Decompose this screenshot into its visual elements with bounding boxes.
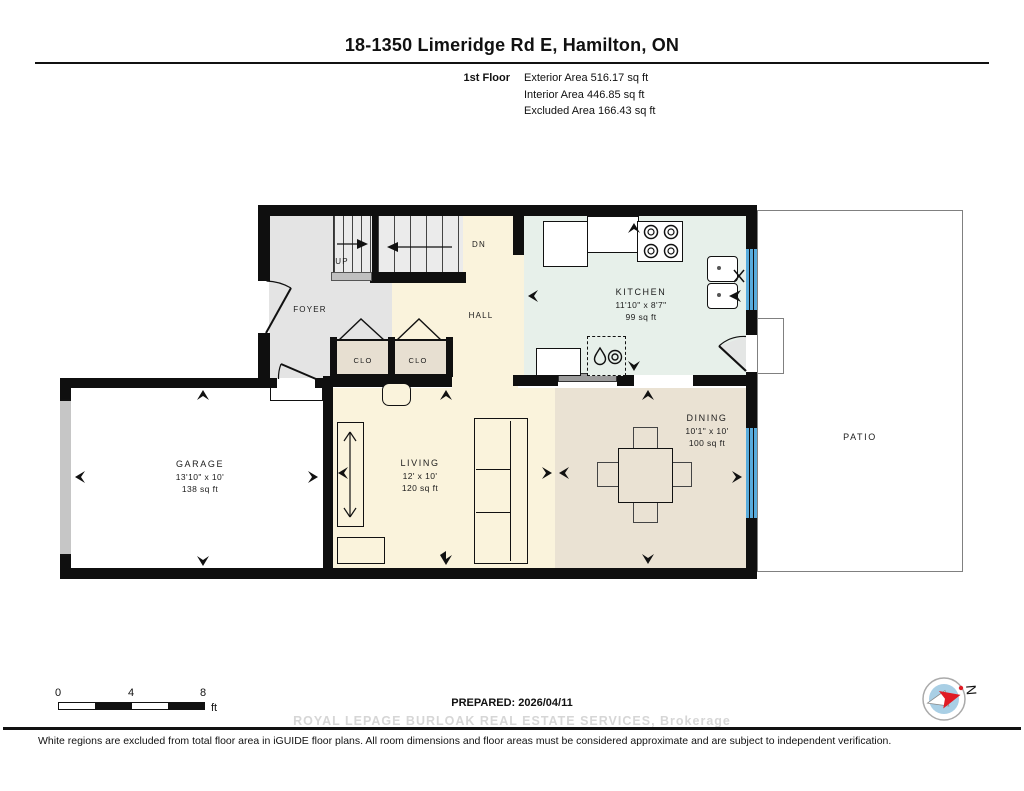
hall-living-passage [452, 374, 518, 388]
kitchen-window [746, 249, 757, 310]
closet2-label: CLO [399, 356, 437, 365]
sofa-back-line [510, 421, 511, 561]
sink-basin-top [707, 256, 738, 282]
patio-label: PATIO [810, 432, 910, 442]
kitchen-counter-left [543, 221, 588, 267]
side-table [337, 537, 385, 564]
exterior-step [757, 318, 784, 374]
garage-door [60, 399, 71, 556]
wall-left-upper-a [258, 211, 270, 281]
sink-basin-bottom [707, 283, 738, 309]
compass-north-dot [959, 686, 963, 690]
wall-top [258, 205, 757, 216]
stair-landing [331, 272, 372, 281]
stairs-down [378, 216, 463, 272]
excluded-area: Excluded Area 166.43 sq ft [524, 105, 655, 118]
title-divider [35, 62, 989, 64]
footer-divider [3, 727, 1021, 730]
stove [637, 221, 683, 262]
prepared-date: PREPARED: 2026/04/11 [0, 697, 1024, 709]
disclaimer-text: White regions are excluded from total fl… [38, 735, 998, 747]
dining-label: DINING 10'1" x 10' 100 sq ft [648, 413, 766, 448]
wall-garage-living [323, 376, 333, 578]
exterior-area: Exterior Area 516.17 sq ft [524, 72, 648, 85]
floor-label: 1st Floor [380, 72, 510, 84]
kitchen-counter-bottom [536, 348, 581, 376]
chair-right [671, 462, 692, 487]
dn-label: DN [466, 240, 492, 249]
dining-table [618, 448, 673, 503]
wall-garage-top-a [60, 378, 277, 388]
up-label: UP [330, 257, 354, 266]
dishwasher [587, 336, 626, 376]
wall-east-d [746, 518, 757, 574]
patio-region [757, 210, 963, 572]
closet-jamb-mid [388, 337, 395, 377]
kitchen-dining-passage [632, 375, 693, 388]
ottoman [382, 383, 411, 406]
garage-step [270, 388, 323, 401]
sofa-cushion-line [476, 512, 511, 513]
window-pane [753, 249, 755, 310]
living-label: LIVING 12' x 10' 120 sq ft [355, 458, 485, 493]
brokerage-watermark: ROYAL LEPAGE BURLOAK REAL ESTATE SERVICE… [0, 714, 1024, 728]
hall-label: HALL [455, 311, 507, 320]
wall-kitchen-bottom-b [617, 375, 634, 386]
compass-north-letter: N [963, 684, 980, 695]
closet-jamb-right [446, 337, 453, 377]
closet1-label: CLO [344, 356, 382, 365]
garage-label: GARAGE 13'10" x 10' 138 sq ft [135, 459, 265, 494]
wall-bottom [60, 568, 757, 579]
chair-left [597, 462, 620, 487]
chair-bottom [633, 501, 658, 523]
page-title: 18-1350 Limeridge Rd E, Hamilton, ON [0, 35, 1024, 56]
stair-bottom-wall [370, 272, 466, 283]
foyer-label: FOYER [278, 305, 342, 314]
wall-kitchen-bottom-c [693, 375, 757, 386]
floorplan-page: 18-1350 Limeridge Rd E, Hamilton, ON 1st… [0, 0, 1024, 791]
closet-front-line [330, 339, 453, 341]
window-pane [749, 249, 751, 310]
kitchen-label: KITCHEN 11'10" x 8'7" 99 sq ft [576, 287, 706, 322]
closet-jamb-left [330, 337, 337, 377]
wall-hall-kitchen [513, 205, 524, 255]
kitchen-counter-mid [587, 216, 639, 253]
interior-area: Interior Area 446.85 sq ft [524, 89, 644, 102]
wall-east-a [746, 205, 757, 249]
wall-east-b [746, 310, 757, 335]
wall-kitchen-bottom-a [513, 375, 558, 386]
